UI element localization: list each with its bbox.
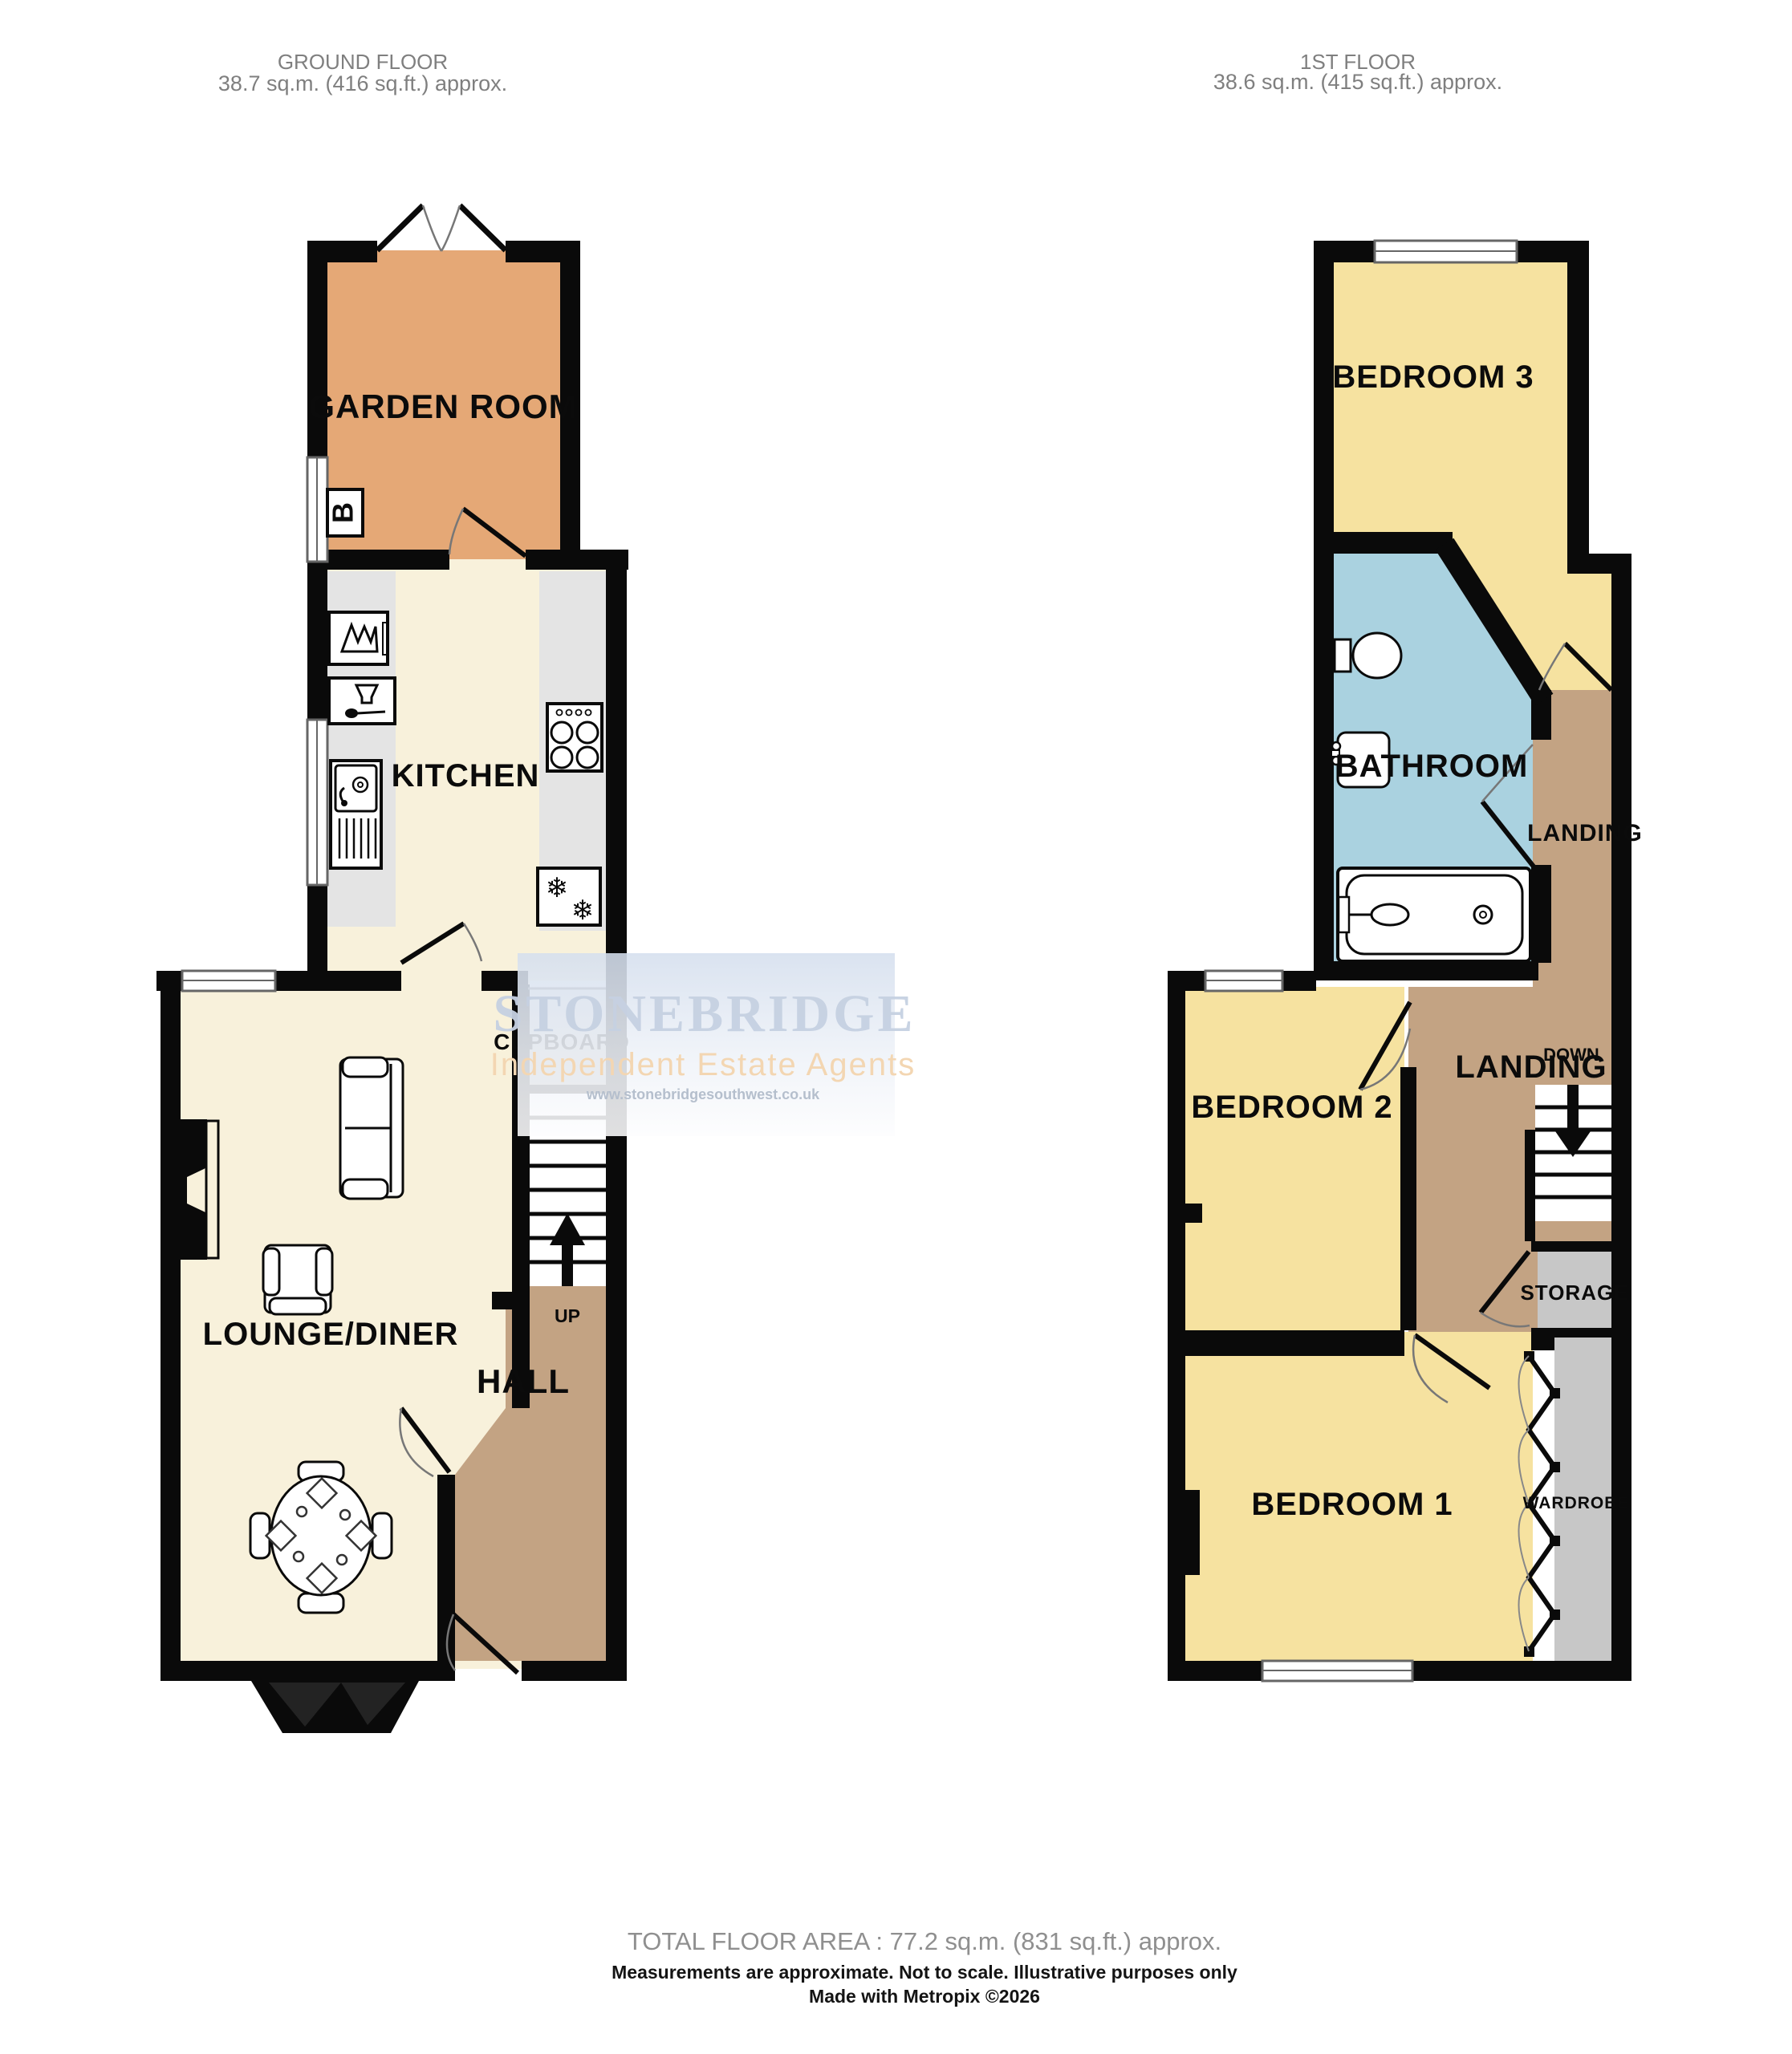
bay-window <box>251 1681 419 1733</box>
ground-windows <box>182 457 327 991</box>
storage-label: STORAGE <box>1520 1281 1628 1305</box>
ground-floor-area: 38.7 sq.m. (416 sq.ft.) approx. <box>218 71 507 95</box>
snowflake-icon: ❄ <box>546 873 569 903</box>
oven <box>329 612 388 664</box>
watermark: STONEBRIDGE Independent Estate Agents ww… <box>490 953 916 1136</box>
wardrobe-label: WARDROBE <box>1523 1494 1630 1512</box>
down-label: DOWN <box>1543 1045 1599 1065</box>
french-doors <box>377 205 506 251</box>
watermark-panel <box>518 953 895 1136</box>
garden-room-label: GARDEN ROOM <box>308 388 577 425</box>
landing-upper-label: LANDING <box>1527 820 1643 846</box>
kitchen-sink <box>331 761 381 868</box>
watermark-url: www.stonebridgesouthwest.co.uk <box>586 1086 820 1102</box>
bedroom3-label: BEDROOM 3 <box>1332 359 1534 395</box>
lounge-diner-label: LOUNGE/DINER <box>203 1317 459 1352</box>
floorplan-drawing: GROUND FLOOR 38.7 sq.m. (416 sq.ft.) app… <box>0 0 1792 2054</box>
watermark-tagline: Independent Estate Agents <box>490 1047 916 1082</box>
total-floor-area: TOTAL FLOOR AREA : 77.2 sq.m. (831 sq.ft… <box>628 1927 1221 1955</box>
armchair <box>263 1245 332 1314</box>
bedroom3-window <box>1375 241 1517 262</box>
snowflake-icon: ❄ <box>571 895 595 926</box>
ground-floor-header: GROUND FLOOR 38.7 sq.m. (416 sq.ft.) app… <box>218 50 507 95</box>
bedroom2-floor <box>1180 987 1404 1333</box>
first-floor-header: 1ST FLOOR 38.6 sq.m. (415 sq.ft.) approx… <box>1213 50 1502 94</box>
disclaimer-text: Measurements are approximate. Not to sca… <box>612 1962 1237 1983</box>
first-floor-plan: BEDROOM 3 BATHROOM LANDING LANDING DOWN … <box>1168 241 1643 1681</box>
ground-floor-title: GROUND FLOOR <box>278 50 448 74</box>
fridge-freezer: ❄ ❄ <box>538 868 600 926</box>
up-label: UP <box>555 1305 580 1326</box>
bedroom1-window <box>1262 1661 1412 1681</box>
kitchen-label: KITCHEN <box>392 758 540 794</box>
watermark-name: STONEBRIDGE <box>494 984 916 1043</box>
bathtub <box>1338 868 1530 961</box>
kitchen-window <box>307 720 327 885</box>
first-floor-area: 38.6 sq.m. (415 sq.ft.) approx. <box>1213 70 1502 94</box>
bedroom2-label: BEDROOM 2 <box>1191 1090 1392 1125</box>
hall-label: HALL <box>477 1362 570 1400</box>
toilet <box>1335 633 1401 678</box>
bedroom2-window <box>1205 971 1282 991</box>
credit-text: Made with Metropix ©2026 <box>809 1986 1040 2007</box>
bathroom-label: BATHROOM <box>1335 749 1529 784</box>
floorplan-page: GROUND FLOOR 38.7 sq.m. (416 sq.ft.) app… <box>0 0 1792 2054</box>
sofa <box>340 1057 403 1199</box>
footer: TOTAL FLOOR AREA : 77.2 sq.m. (831 sq.ft… <box>612 1927 1237 2007</box>
hob <box>547 704 602 771</box>
bedroom1-label: BEDROOM 1 <box>1251 1487 1453 1522</box>
boiler: B <box>327 489 363 536</box>
dishwasher <box>329 678 395 724</box>
garden-window <box>307 457 327 562</box>
lounge-window <box>182 971 275 991</box>
boiler-label: B <box>327 502 360 523</box>
